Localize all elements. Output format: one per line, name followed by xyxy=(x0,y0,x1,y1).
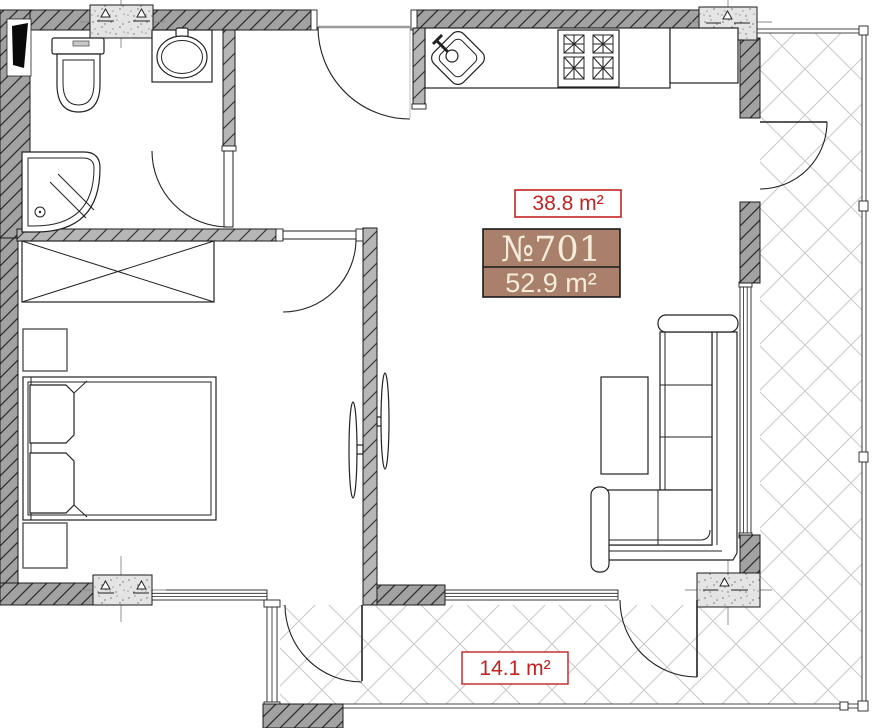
wall-balcony-southwest xyxy=(263,704,343,728)
door-jamb xyxy=(276,229,283,241)
wall-east-mid xyxy=(740,202,760,283)
door-jamb xyxy=(311,10,317,30)
wall-south-left xyxy=(0,583,93,605)
railing-joint xyxy=(859,452,868,462)
door-jamb xyxy=(356,229,363,241)
nightstand xyxy=(23,329,67,371)
sofa-armrest-top xyxy=(658,315,738,332)
kitchen-counter-right xyxy=(670,28,738,83)
window-living-south xyxy=(445,590,618,600)
railing-joint xyxy=(840,702,848,710)
wall-north-right xyxy=(417,10,699,30)
wall-east-upper xyxy=(740,38,760,118)
railing-joint xyxy=(859,201,868,211)
bed xyxy=(23,377,216,520)
pillow xyxy=(30,385,74,443)
balcony-area-label: 14.1 m² xyxy=(462,652,568,684)
unit-area-text: 52.9 m² xyxy=(505,268,597,298)
unit-label: №701 52.9 m² xyxy=(483,229,620,298)
wall-bedroom-living xyxy=(363,228,377,605)
pillow xyxy=(30,453,74,513)
living-area-text: 38.8 m² xyxy=(532,192,603,215)
wall-kitchen-west xyxy=(413,28,425,104)
wall-north-left xyxy=(0,10,311,30)
sofa-seats-vertical xyxy=(660,332,712,490)
bathroom-sink xyxy=(152,28,212,82)
railing-joint xyxy=(858,701,868,711)
sofa-seats-horizontal xyxy=(608,490,712,545)
unit-number-text: №701 xyxy=(501,230,601,270)
toilet xyxy=(52,38,104,112)
railing-joint xyxy=(859,26,868,35)
wall-end-cap xyxy=(222,146,236,151)
wall-bedroom-north xyxy=(17,229,276,241)
wall-west-lower xyxy=(0,238,18,583)
window-bedroom-south xyxy=(152,590,267,600)
coffee-table xyxy=(601,377,648,474)
stove xyxy=(558,30,619,87)
door-jamb xyxy=(411,10,417,30)
floor-plan: 38.8 m² №701 52.9 m² 14.1 m² xyxy=(0,0,882,728)
wardrobe xyxy=(22,241,214,302)
kitchen xyxy=(425,28,738,88)
balcony-area-text: 14.1 m² xyxy=(479,657,550,680)
wall-bathroom-east xyxy=(223,30,235,146)
wall-end-cap xyxy=(412,104,426,109)
nightstand xyxy=(23,523,67,568)
living-area-label: 38.8 m² xyxy=(515,190,621,217)
sofa-armrest-left xyxy=(591,487,609,572)
wall-east-lower xyxy=(740,535,760,577)
window-living-east xyxy=(739,282,752,538)
